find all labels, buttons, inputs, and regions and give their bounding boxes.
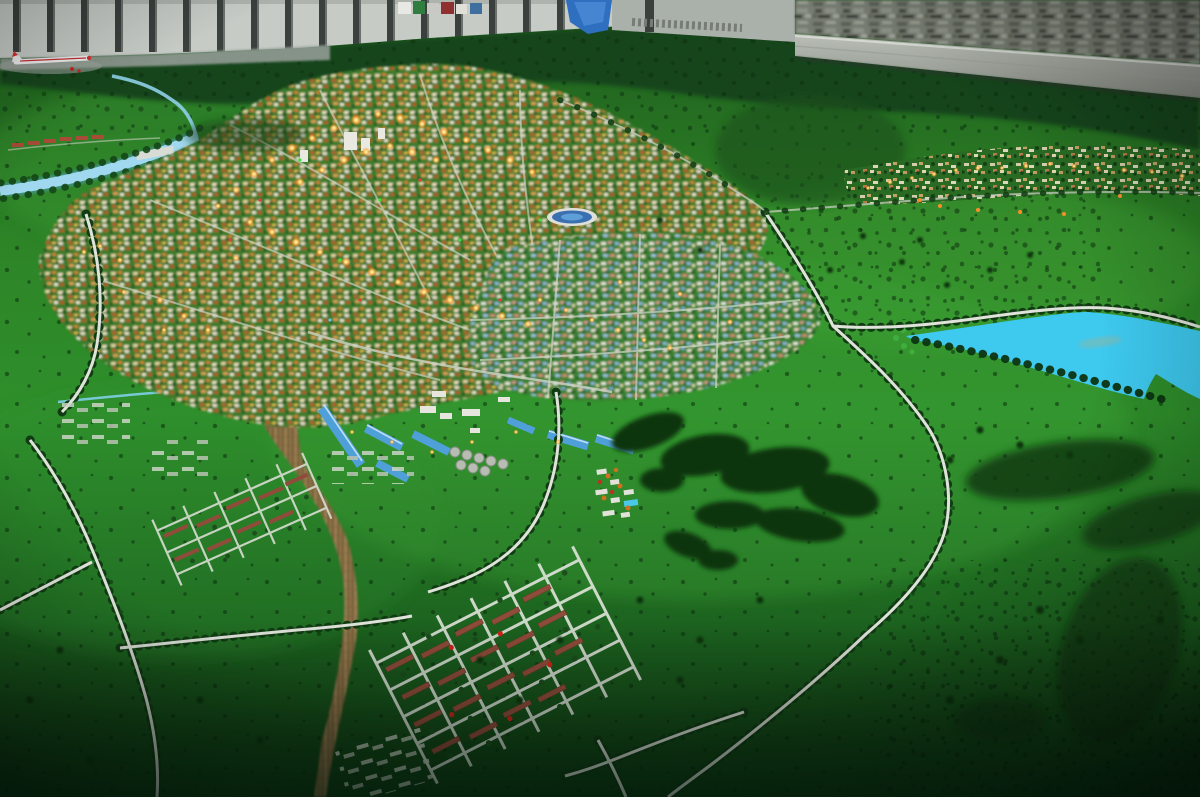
bottom-shade — [0, 620, 1200, 797]
model-scene — [0, 0, 1200, 797]
scale-model-photo — [0, 0, 1200, 797]
